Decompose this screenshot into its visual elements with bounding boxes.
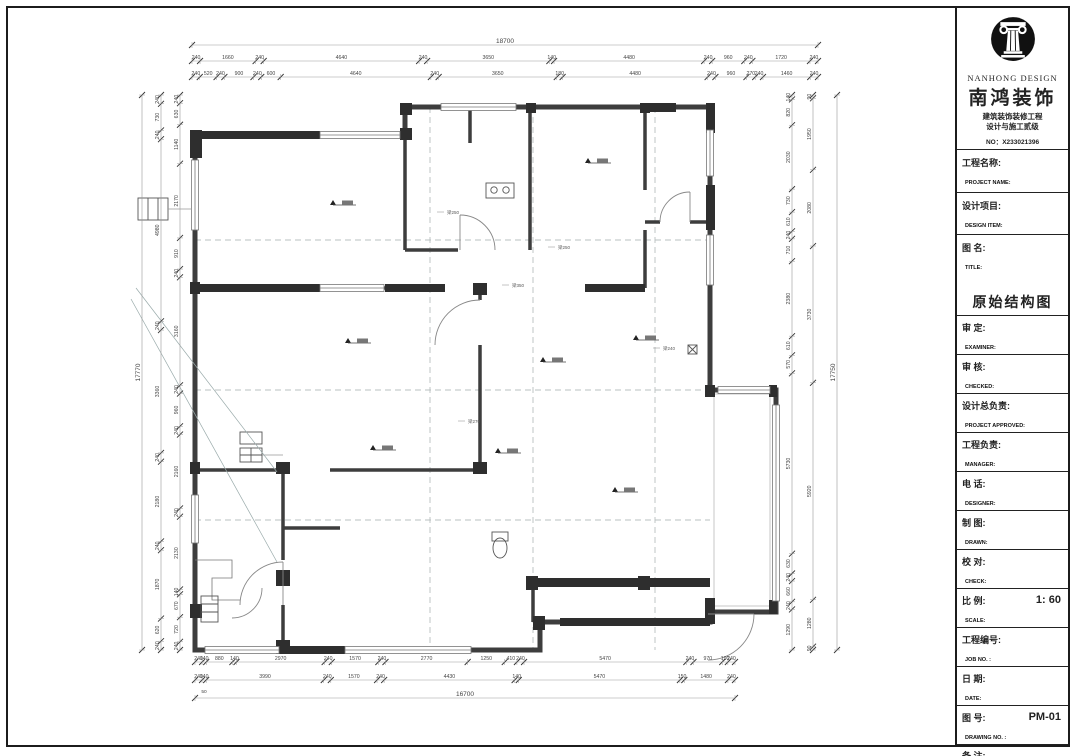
row-label-en: DRAWN: (965, 540, 988, 546)
row-label-cn: 工程负责: (962, 440, 1001, 450)
row-manager: 工程负责: MANAGER: (957, 433, 1068, 472)
row-label-cn: 制 图: (962, 518, 986, 528)
drawing-name: 原始结构图 (962, 292, 1063, 312)
company-brand: NANHONG DESIGN 南鸿装饰 建筑装饰装修工程 设计与施工贰级 NO：… (957, 8, 1068, 150)
row-label-cn: 电 话: (962, 479, 986, 489)
row-date: 日 期: DATE: (957, 667, 1068, 706)
row-job-no: 工程编号: JOB NO. : (957, 628, 1068, 667)
row-label-en: CHECK: (965, 579, 986, 585)
row-label-cn: 图 号: (962, 713, 986, 723)
row-drawn: 制 图: DRAWN: (957, 511, 1068, 550)
design-item-label-en: DESIGN ITEM: (965, 223, 1003, 229)
row-scale: 比 例: SCALE: 1: 60 (957, 589, 1068, 628)
row-label-cn: 校 对: (962, 557, 986, 567)
license-number: NO：X233021396 (962, 136, 1063, 146)
row-examiner: 审 定: EXAMINER: (957, 316, 1068, 355)
design-item-label-cn: 设计项目: (962, 201, 1001, 211)
title-block: NANHONG DESIGN 南鸿装饰 建筑装饰装修工程 设计与施工贰级 NO：… (955, 8, 1068, 745)
drawing-sheet: 1870024016602404640240365014044802409602… (0, 0, 1080, 756)
drawing-title-field: 图 名: TITLE: 原始结构图 (957, 235, 1068, 316)
drawing-title-label-cn: 图 名: (962, 243, 986, 253)
drawing-title-label-en: TITLE: (965, 265, 982, 271)
row-drawing-no: 图 号: DRAWING NO. : PM-01 (957, 706, 1068, 745)
row-label-en: MANAGER: (965, 462, 995, 468)
row-label-cn: 日 期: (962, 674, 986, 684)
row-label-en: DATE: (965, 696, 981, 702)
design-item-field: 设计项目: DESIGN ITEM: (957, 193, 1068, 235)
row-label-en: EXAMINER: (965, 345, 996, 351)
row-checked: 审 核: CHECKED: (957, 355, 1068, 394)
remarks-section: 备 注: 未得本工程设计师书面许可不得随意将任何部分翻印: 此图不作度量尺寸，尺… (957, 745, 1068, 756)
row-label-cn: 设计总负责: (962, 401, 1010, 411)
drawing-number-value: PM-01 (1029, 711, 1061, 723)
row-label-cn: 审 核: (962, 362, 986, 372)
sheet-border (6, 6, 1070, 747)
row-phone-designer: 电 话: DESIGNER: (957, 472, 1068, 511)
row-label-cn: 比 例: (962, 596, 986, 606)
row-label-cn: 工程编号: (962, 635, 1001, 645)
row-label-en: PROJECT APPROVED: (965, 423, 1025, 429)
project-name-label-cn: 工程名称: (962, 158, 1001, 168)
company-logo-icon (986, 12, 1040, 66)
row-label-en: JOB NO. : (965, 657, 991, 663)
scale-value: 1: 60 (1036, 594, 1061, 606)
row-label-en: CHECKED: (965, 384, 994, 390)
brand-name-cn: 南鸿装饰 (962, 83, 1063, 110)
row-label-en: DRAWING NO. : (965, 735, 1006, 741)
row-label-en: SCALE: (965, 618, 985, 624)
row-check: 校 对: CHECK: (957, 550, 1068, 589)
remarks-title: 备 注: (962, 749, 1063, 756)
brand-subtitle-1: 建筑装饰装修工程 (962, 112, 1063, 122)
row-label-en: DESIGNER: (965, 501, 996, 507)
row-project-approved: 设计总负责: PROJECT APPROVED: (957, 394, 1068, 433)
project-name-label-en: PROJECT NAME: (965, 180, 1011, 186)
brand-subtitle-2: 设计与施工贰级 (962, 122, 1063, 132)
brand-name-en: NANHONG DESIGN (962, 73, 1063, 83)
row-label-cn: 审 定: (962, 323, 986, 333)
project-name-field: 工程名称: PROJECT NAME: (957, 150, 1068, 193)
